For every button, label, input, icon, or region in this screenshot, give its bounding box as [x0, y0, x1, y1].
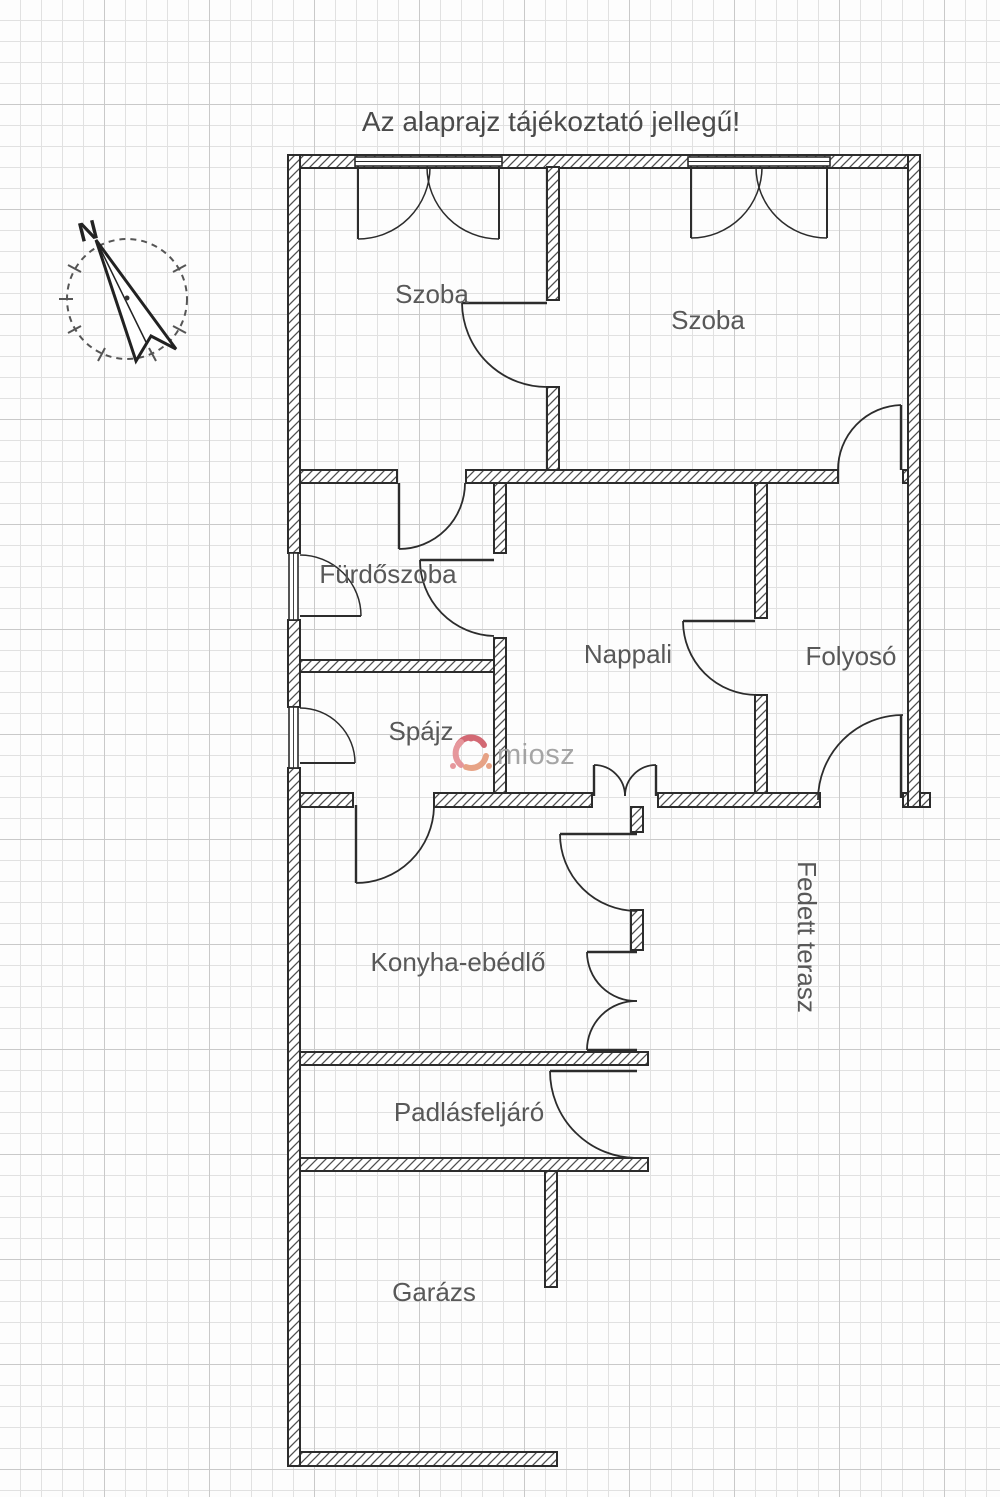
- room-label-garazs: Garázs: [392, 1277, 476, 1307]
- room-label-furdoszoba: Fürdőszoba: [319, 559, 457, 589]
- room-label-nappali: Nappali: [584, 639, 672, 669]
- door-bathroom-top: [399, 483, 465, 549]
- door-swing-arc: [560, 834, 637, 911]
- wall-left-outer-c: [288, 768, 300, 1466]
- compass-north-label: N: [75, 214, 101, 248]
- wall-hall-left-b: [755, 695, 767, 793]
- compass-center-dot: [125, 296, 130, 301]
- plan-title: Az alaprajz tájékoztató jellegű!: [362, 106, 740, 137]
- window-swing-arc: [756, 167, 827, 238]
- compass-rose: N: [59, 214, 187, 361]
- room-label-padlasfeljaro: Padlásfeljáró: [394, 1097, 544, 1127]
- watermark: miosz: [450, 735, 575, 772]
- room-label-folyoso: Folyosó: [805, 641, 896, 671]
- wall-left-outer-b: [288, 620, 300, 707]
- wall-garage-bottom: [288, 1452, 557, 1466]
- door-swing-arc: [587, 952, 637, 1001]
- door-double-kitchen: [587, 952, 637, 1050]
- watermark-logo-dot: [450, 763, 456, 769]
- window-bedroom2: [688, 157, 830, 238]
- room-label-szoba-1: Szoba: [395, 279, 469, 309]
- wall-kitchen-right-b: [631, 910, 643, 950]
- door-pantry: [356, 805, 434, 883]
- door-swing-arc: [462, 303, 549, 387]
- door-swing-arc: [356, 807, 434, 883]
- door-swing-arc: [818, 715, 903, 800]
- wall-bedroom-divider-a: [547, 167, 559, 300]
- wall-attic-garage-divider: [288, 1158, 648, 1171]
- walls: [288, 155, 930, 1466]
- room-label-konyha-ebedlo: Konyha-ebédlő: [371, 947, 546, 977]
- wall-mid-upper-a: [288, 470, 397, 483]
- door-swing-arc: [399, 483, 465, 549]
- door-kitchen-terrace: [560, 834, 637, 911]
- room-label-szoba-2: Szoba: [671, 305, 745, 335]
- door-swing-arc: [838, 405, 901, 470]
- door-swing-arc: [683, 621, 757, 695]
- window-pantry: [289, 707, 355, 768]
- window-swing-arc: [691, 167, 762, 238]
- wall-mid-lower-c: [658, 793, 820, 807]
- compass-needle: [96, 240, 176, 361]
- door-bedroom-divider: [462, 303, 549, 387]
- wall-right-outer: [908, 155, 920, 807]
- wall-kitchen-attic-divider: [288, 1052, 648, 1065]
- compass-tick: [173, 326, 186, 333]
- door-swing-arc: [550, 1071, 637, 1158]
- room-label-fedett-terasz: Fedett terasz: [792, 861, 822, 1013]
- door-hall-entrance: [818, 715, 903, 800]
- compass-tick: [98, 348, 105, 361]
- wall-mid-lower-b: [434, 793, 592, 807]
- door-bedroom2-hall: [838, 405, 901, 470]
- door-living-hall: [683, 621, 757, 695]
- watermark-logo-arc: [456, 742, 461, 765]
- wall-kitchen-right-a: [631, 807, 643, 832]
- watermark-logo-dot: [486, 763, 492, 769]
- wall-bathroom-right-a: [494, 483, 506, 553]
- compass-needle-fold: [96, 240, 146, 342]
- wall-mid-upper-b: [466, 470, 838, 483]
- window-swing-arc: [427, 167, 499, 239]
- window-bedroom1: [355, 157, 502, 239]
- door-swing-arc: [625, 765, 656, 796]
- wall-bedroom-divider-b: [547, 387, 559, 470]
- window-swing-arc: [300, 708, 355, 763]
- window-swing-arc: [358, 167, 430, 239]
- wall-left-outer-a: [288, 155, 300, 553]
- watermark-logo-dot: [468, 735, 475, 742]
- wall-bath-pantry-divider: [288, 660, 506, 672]
- door-swing-arc: [594, 765, 625, 796]
- watermark-text: miosz: [497, 739, 575, 771]
- wall-hall-left-a: [755, 483, 767, 618]
- door-double-living-kitchen: [594, 765, 656, 796]
- watermark-logo-arc: [466, 756, 486, 768]
- grid-background: N Az alaprajz tájékoztató jellegű! Szoba…: [0, 0, 1000, 1497]
- compass-tick: [68, 265, 81, 272]
- floorplan-svg: N Az alaprajz tájékoztató jellegű! Szoba…: [0, 0, 1000, 1497]
- wall-garage-right-stub: [545, 1171, 557, 1287]
- watermark-logo: [450, 735, 492, 770]
- room-label-spajz: Spájz: [388, 716, 453, 746]
- door-attic-access: [550, 1071, 637, 1158]
- door-swing-arc: [587, 1001, 637, 1050]
